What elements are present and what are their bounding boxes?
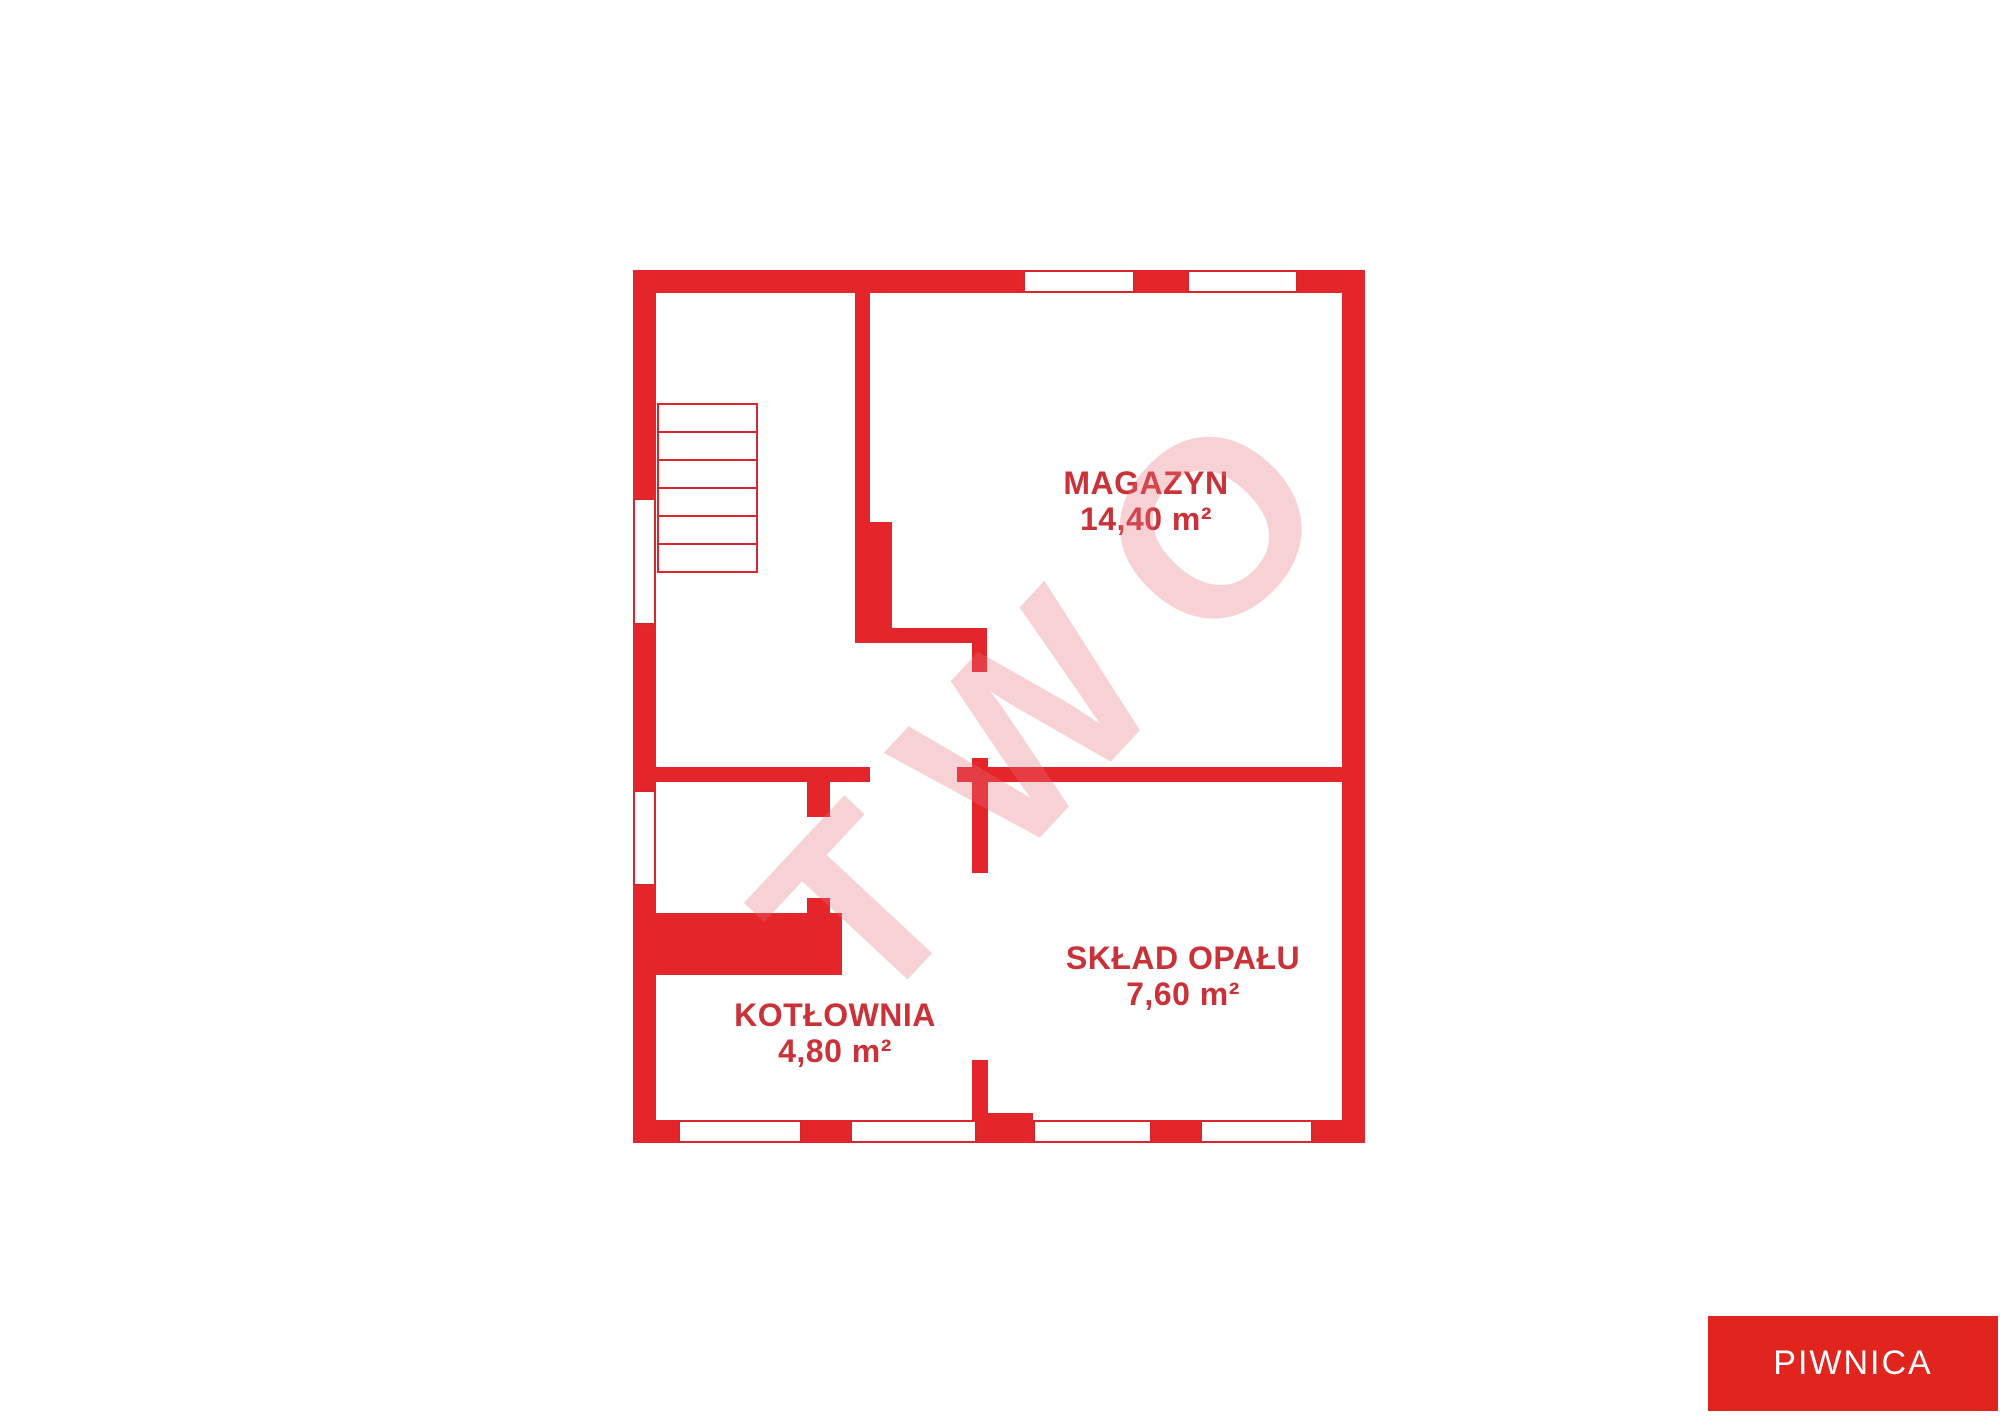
wall-stairhall-magazyn-pier xyxy=(855,522,892,643)
window-bottom-4 xyxy=(1200,1120,1313,1143)
floor-badge-label: PIWNICA xyxy=(1773,1344,1932,1383)
room-name: KOTŁOWNIA xyxy=(635,997,1035,1033)
wall-lobby-partition-upper xyxy=(807,782,830,817)
stair-step xyxy=(657,487,758,517)
stair-step xyxy=(657,459,758,489)
window-left-1 xyxy=(633,498,656,625)
wall-corridor-stub xyxy=(972,643,987,672)
wall-outer-right xyxy=(1342,270,1365,1143)
wall-middle-right xyxy=(957,767,1342,782)
stair-step xyxy=(657,403,758,433)
stair-step xyxy=(657,543,758,573)
room-area: 14,40 m² xyxy=(946,501,1346,537)
window-bottom-1 xyxy=(678,1120,802,1143)
wall-middle-left xyxy=(656,767,870,782)
staircase xyxy=(657,405,758,589)
floor-badge: PIWNICA xyxy=(1708,1316,1998,1411)
window-top-1 xyxy=(1023,270,1135,293)
floorplan-canvas: MAGAZYN 14,40 m² SKŁAD OPAŁU 7,60 m² KOT… xyxy=(0,0,2000,1416)
stair-step xyxy=(657,515,758,545)
window-bottom-2 xyxy=(850,1120,977,1143)
room-label-magazyn: MAGAZYN 14,40 m² xyxy=(946,465,1346,537)
window-top-2 xyxy=(1187,270,1298,293)
window-left-2 xyxy=(633,790,656,886)
room-area: 7,60 m² xyxy=(983,976,1383,1012)
wall-chimney-block xyxy=(656,913,842,975)
window-bottom-3 xyxy=(1033,1120,1152,1143)
wall-lobby-partition-lower xyxy=(807,898,830,914)
room-name: SKŁAD OPAŁU xyxy=(983,940,1383,976)
stair-step xyxy=(657,431,758,461)
room-label-sklad-opalu: SKŁAD OPAŁU 7,60 m² xyxy=(983,940,1383,1012)
wall-corridor-horizontal xyxy=(855,628,987,643)
wall-divider-upper xyxy=(972,758,988,873)
room-area: 4,80 m² xyxy=(635,1033,1035,1069)
room-name: MAGAZYN xyxy=(946,465,1346,501)
wall-divider-foot xyxy=(972,1113,1033,1143)
room-label-kotlownia: KOTŁOWNIA 4,80 m² xyxy=(635,997,1035,1069)
